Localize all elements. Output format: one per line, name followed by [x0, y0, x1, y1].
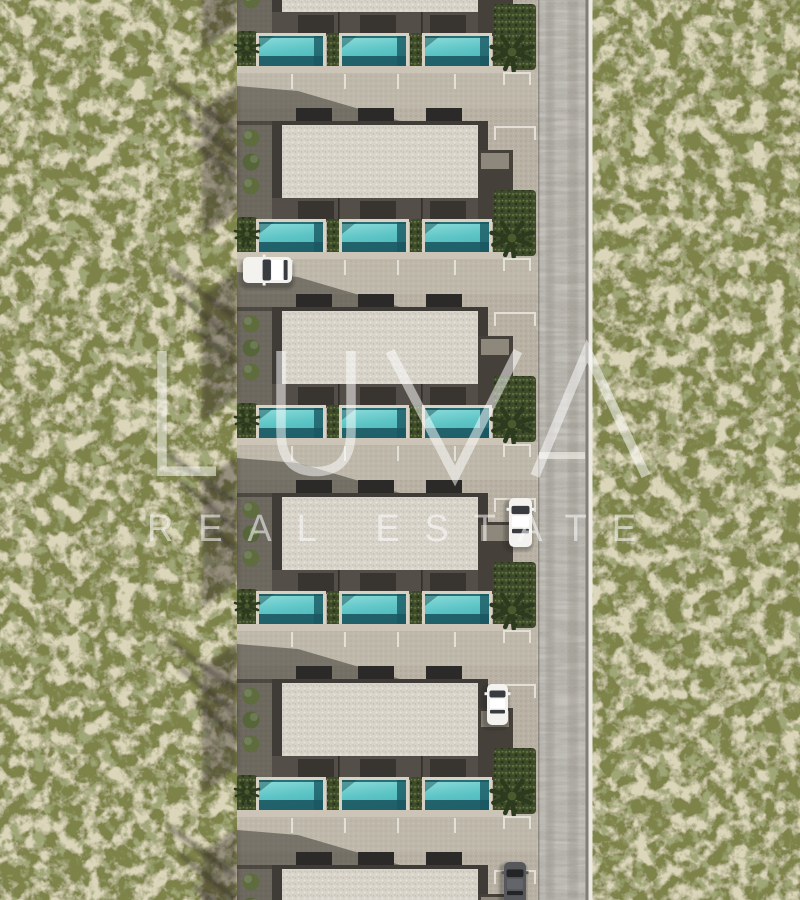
aerial-development-render: REAL ESTATE	[0, 0, 800, 900]
road-right-edge	[586, 0, 589, 900]
watermark-tagline: REAL ESTATE	[147, 508, 661, 550]
car-3	[482, 684, 511, 729]
grass-field-left	[0, 0, 237, 900]
road-curb-line	[589, 0, 593, 900]
render-svg: REAL ESTATE	[0, 0, 800, 900]
car-1	[240, 255, 294, 290]
grass-field-right	[593, 0, 800, 900]
car-4	[499, 862, 529, 900]
road-left-edge	[538, 0, 540, 900]
